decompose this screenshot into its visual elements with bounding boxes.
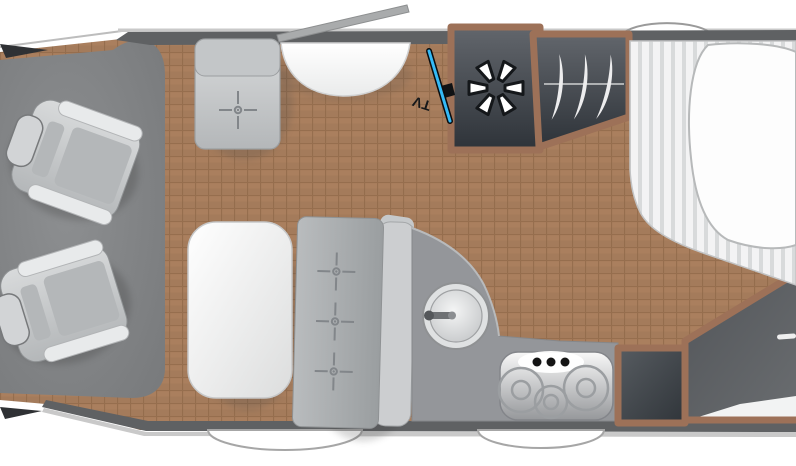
hob-knob-dot xyxy=(533,358,542,367)
hob-knob-dot xyxy=(547,358,556,367)
wing-mirror-bottom-icon xyxy=(0,407,42,419)
hob-knob-dot xyxy=(561,358,570,367)
shower-cubicle xyxy=(451,27,540,150)
hob xyxy=(499,351,613,420)
floorplan-canvas: TV xyxy=(0,0,796,466)
travel-seat xyxy=(195,39,293,160)
sink-tap-icon xyxy=(424,311,456,321)
dinette-table xyxy=(188,222,292,398)
storage-cabinet xyxy=(618,348,685,423)
wheel-arch-rear-bottom xyxy=(478,430,604,448)
kitchen-sink xyxy=(423,283,489,349)
floorplan-stage: TV xyxy=(0,0,796,466)
